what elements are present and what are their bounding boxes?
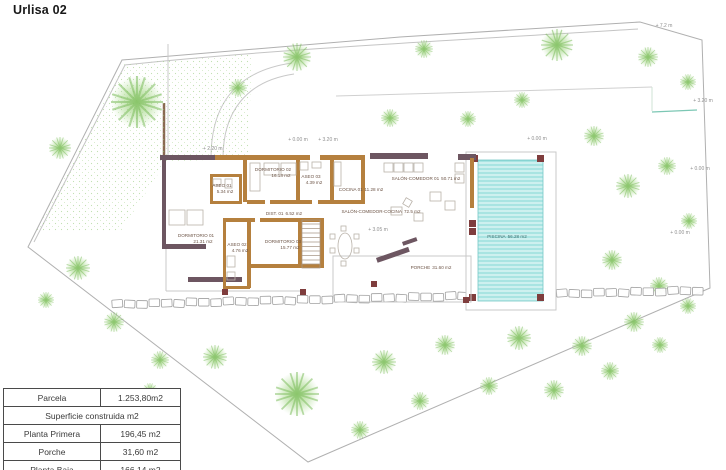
stone [174, 299, 185, 307]
porche-name: PORCHE [411, 265, 431, 270]
tree-icon [435, 335, 455, 355]
level-top-c: + 0.00 m [527, 136, 547, 142]
tree-icon [658, 157, 676, 175]
stone [248, 298, 259, 306]
scc-area: 72.5 m2 [404, 209, 421, 214]
tree-icon [203, 345, 227, 369]
tree-icon [514, 92, 530, 108]
tree-icon [229, 79, 247, 97]
stone [211, 299, 222, 307]
table-row-planta-baja: Planta Baja 166,14 m2 [4, 461, 181, 470]
room-label-cocina-01: COCINA 0111.28 m2 [339, 187, 384, 192]
planta-baja-label: Planta Baja [4, 461, 101, 470]
tree-icon [480, 377, 498, 395]
tree-icon [616, 174, 640, 198]
planta-primera-value: 196,45 m2 [101, 425, 181, 443]
tree-icon [601, 362, 619, 380]
tree-icon [624, 312, 644, 332]
stone [680, 287, 691, 295]
table-row-header: Superficie construida m2 [4, 407, 181, 425]
pool-water [478, 160, 543, 301]
stone [272, 296, 283, 304]
room-label-aseo-03: ASEO 03 [301, 174, 321, 179]
room-area-dormitorio-02: 16.18 m2 [271, 173, 291, 178]
room-area-dormitorio-01: 21.31 m2 [193, 239, 213, 244]
stone-wall [112, 286, 703, 308]
stone [433, 293, 444, 301]
level-left: + 2.20 m [203, 146, 223, 152]
stone [112, 299, 123, 307]
hedge-line [652, 110, 697, 112]
terrace-outline [166, 249, 300, 291]
stone [556, 289, 567, 297]
room-label-dormitorio-01: DORMITORIO 01 [178, 233, 215, 238]
room-label-dormitorio-02: DORMITORIO 02 [255, 167, 292, 172]
room-label-salon-comedor-01: SALÓN-COMEDOR 0150.71 m2 [392, 175, 461, 181]
room-label-aseo-02: ASEO 02 [227, 242, 247, 247]
dist-area: 6.52 m2 [286, 211, 303, 216]
parcela-label: Parcela [4, 389, 101, 407]
stone [606, 288, 617, 296]
room-label-aseo-01: ASEO 01 [212, 183, 232, 188]
table-row-porche: Porche 31,60 m2 [4, 443, 181, 461]
tree-icon [283, 43, 311, 71]
cocina-name: COCINA 01 [339, 187, 363, 192]
level-top-b: + 3.20 m [318, 137, 338, 143]
level-right-a: + 3.20 m [693, 98, 713, 104]
stone [149, 299, 160, 307]
level-labels: + 2.20 m + 0.00 m + 3.20 m + 0.00 m + 7.… [203, 23, 713, 236]
tree-icon [638, 47, 658, 67]
piscina-name: PISCINA [487, 234, 506, 239]
staircase [302, 220, 320, 268]
tree-icon [680, 298, 696, 314]
dining-table [338, 233, 352, 259]
drawing-sheet: Urlisa 02 [0, 0, 726, 470]
level-porch: + 3.05 m [368, 227, 388, 233]
tree-icon [372, 350, 396, 374]
level-top-right: + 7.2 m [656, 23, 673, 29]
tree-icon [151, 351, 169, 369]
tree-icon [275, 372, 319, 416]
stone [371, 294, 382, 302]
stone [334, 294, 345, 302]
page-title: Urlisa 02 [13, 3, 67, 17]
planta-baja-value: 166,14 m2 [101, 461, 181, 470]
room-area-aseo-01: 5.34 m2 [217, 189, 234, 194]
tree-icon [680, 74, 696, 90]
piscina-area: 56.28 m2 [508, 234, 528, 239]
table-row-planta-primera: Planta Primera 196,45 m2 [4, 425, 181, 443]
tree-icon [507, 326, 531, 350]
stone [408, 293, 419, 301]
room-label-piscina: PISCINA56.28 m2 [487, 234, 527, 239]
stone [260, 296, 271, 304]
tree-icon [572, 336, 592, 356]
room-label-porche: PORCHE31.60 m2 [411, 265, 452, 270]
tree-icon [111, 76, 163, 128]
stone [310, 296, 321, 304]
stone [235, 297, 246, 305]
tree-icon [104, 312, 124, 332]
stone [198, 298, 209, 306]
salon01-area: 50.71 m2 [441, 176, 461, 181]
level-right-c: + 0.00 m [670, 230, 690, 236]
stone [137, 301, 148, 309]
stone [631, 287, 642, 295]
tree-icon [38, 292, 54, 308]
stone [581, 290, 592, 298]
cocina-area: 11.28 m2 [364, 187, 383, 192]
tree-icon [49, 137, 71, 159]
room-area-aseo-02: 4.76 m2 [232, 248, 249, 253]
walls-first-floor [160, 153, 476, 282]
tree-icon [652, 337, 668, 353]
porch-pillars [222, 281, 469, 303]
porche-value: 31,60 m2 [101, 443, 181, 461]
stone [223, 297, 234, 305]
porche-label: Porche [4, 443, 101, 461]
stone [618, 289, 629, 297]
stone [297, 295, 308, 303]
tree-icon [66, 256, 90, 280]
stone [285, 297, 296, 305]
room-label-dist-01: DIST. 016.52 m2 [266, 211, 303, 216]
tree-icon [415, 40, 433, 58]
trees-layer [38, 29, 697, 439]
stone [643, 288, 654, 296]
table-row-parcela: Parcela 1.253,80m2 [4, 389, 181, 407]
level-top-a: + 0.00 m [288, 137, 308, 143]
room-area-aseo-03: 4.39 m2 [306, 180, 323, 185]
pool-area [466, 152, 556, 310]
stone [161, 299, 172, 307]
scc-name: SALÓN-COMEDOR-COCINA [341, 208, 402, 214]
table-section-header: Superficie construida m2 [4, 407, 181, 425]
tree-icon [351, 421, 369, 439]
stone [569, 289, 580, 297]
room-label-dormitorio-03: DORMITORIO 03 [265, 239, 302, 244]
tree-icon [541, 29, 573, 61]
stone [445, 291, 456, 299]
stone [421, 293, 432, 301]
stone [124, 300, 135, 308]
areas-table: Parcela 1.253,80m2 Superficie construida… [3, 388, 181, 470]
stone [692, 287, 703, 295]
stone [655, 288, 666, 296]
parcela-value: 1.253,80m2 [101, 389, 181, 407]
stone [667, 286, 678, 294]
tree-icon [381, 109, 399, 127]
planta-primera-label: Planta Primera [4, 425, 101, 443]
porche-area: 31.60 m2 [432, 265, 452, 270]
stone [396, 294, 407, 302]
level-right-b: + 0.00 m [690, 166, 710, 172]
tree-icon [544, 380, 564, 400]
room-label-salon-comedor-cocina: SALÓN-COMEDOR-COCINA72.5 m2 [341, 208, 421, 214]
salon01-name: SALÓN-COMEDOR 01 [392, 175, 440, 181]
stone [322, 296, 333, 304]
tree-icon [411, 392, 429, 410]
dist-name: DIST. 01 [266, 211, 284, 216]
tree-icon [584, 126, 604, 146]
room-area-dormitorio-03: 15.77 m2 [280, 245, 300, 250]
tree-icon [460, 111, 476, 127]
tree-icon [602, 250, 622, 270]
tree-icon [681, 213, 697, 229]
stone [594, 288, 605, 296]
stone [186, 298, 197, 306]
stone [383, 294, 394, 302]
